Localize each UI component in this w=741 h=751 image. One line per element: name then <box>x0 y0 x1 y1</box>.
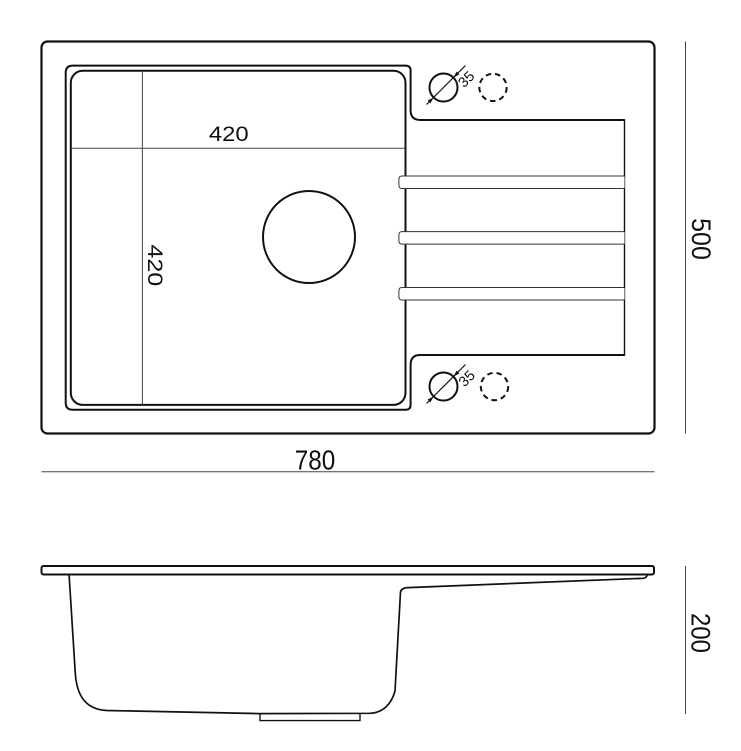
svg-text:420: 420 <box>143 244 167 286</box>
svg-text:420: 420 <box>209 122 249 146</box>
svg-text:780: 780 <box>295 444 336 475</box>
svg-text:500: 500 <box>686 218 716 260</box>
svg-text:200: 200 <box>685 613 715 653</box>
